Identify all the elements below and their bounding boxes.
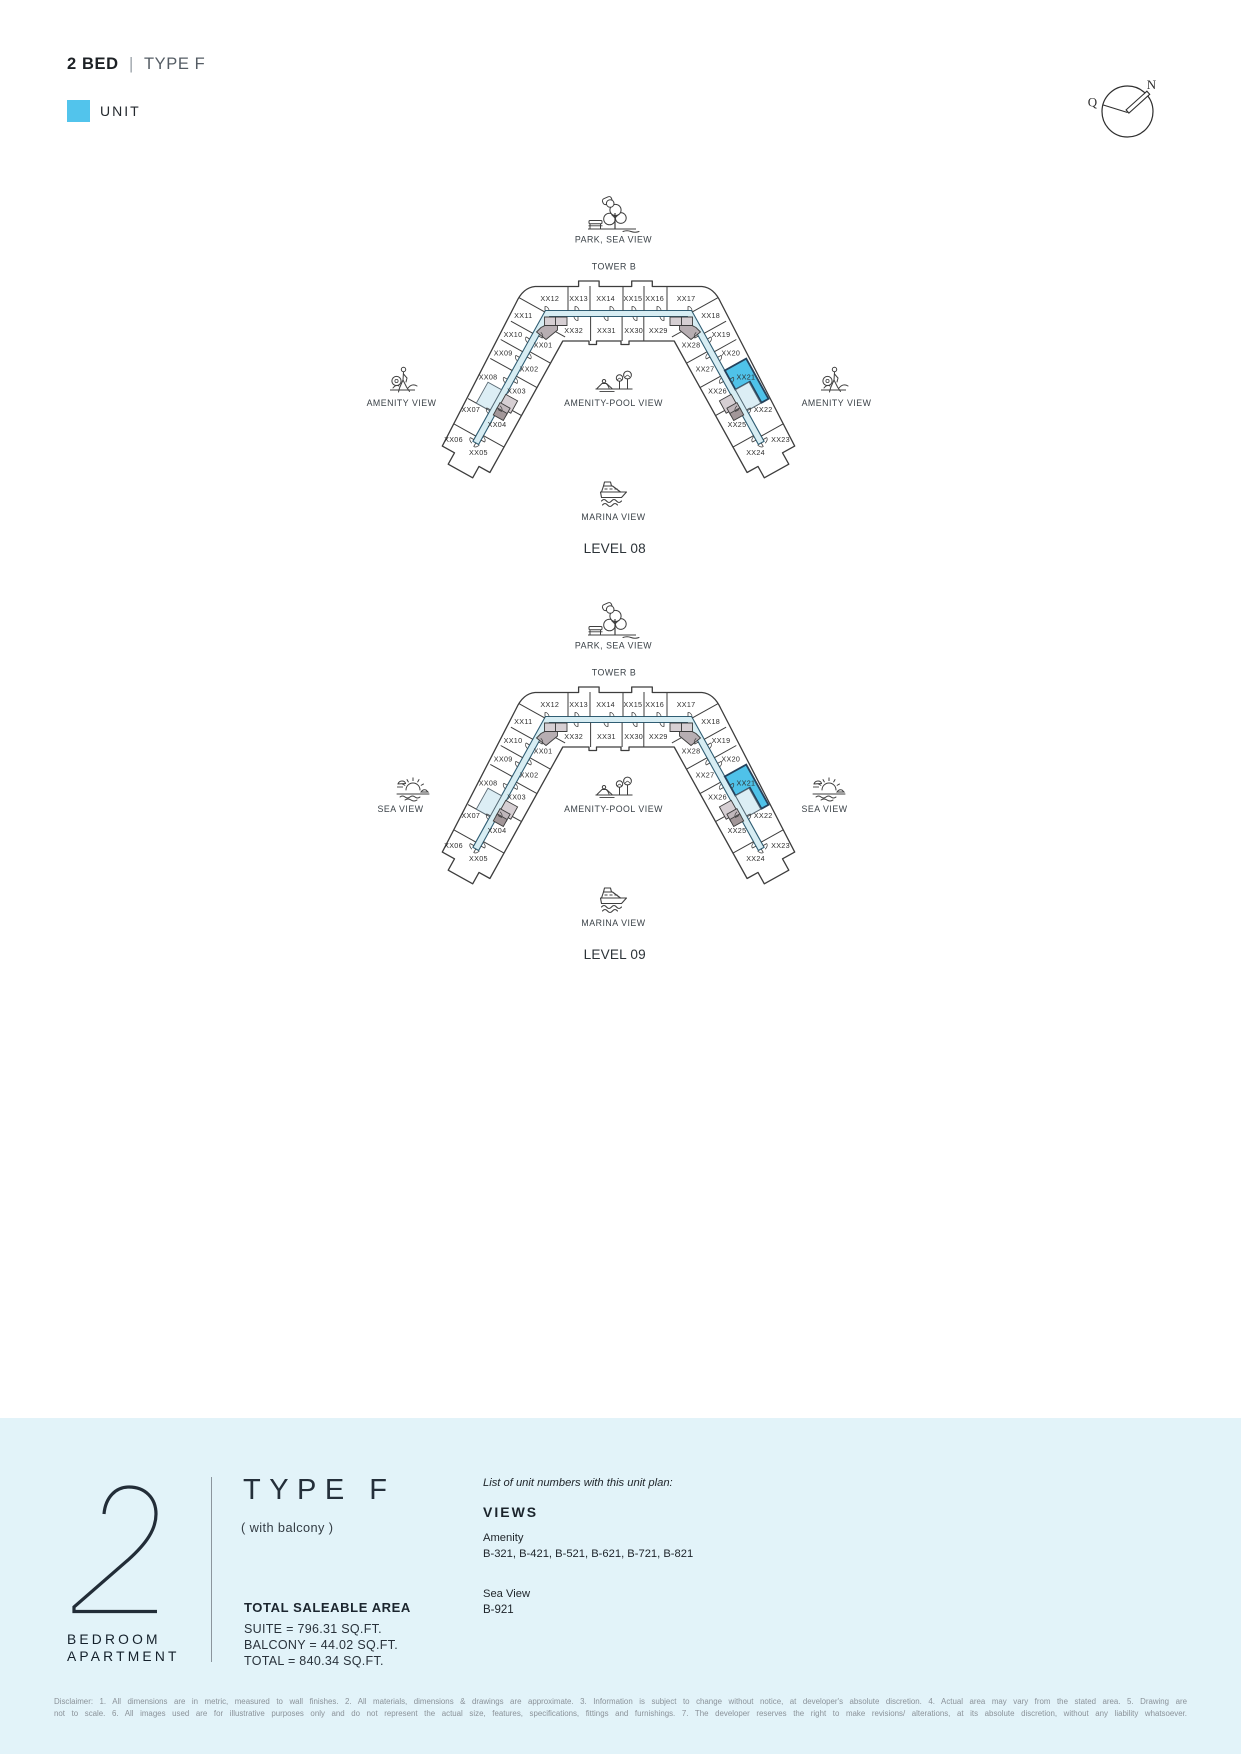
svg-text:PARK, SEA VIEW: PARK, SEA VIEW [575, 641, 652, 651]
svg-text:XX30: XX30 [624, 732, 643, 741]
svg-text:AMENITY-POOL VIEW: AMENITY-POOL VIEW [564, 398, 663, 408]
svg-text:XX11: XX11 [514, 311, 532, 320]
svg-text:AMENITY VIEW: AMENITY VIEW [367, 398, 437, 408]
svg-text:XX02: XX02 [520, 771, 539, 780]
svg-text:XX07: XX07 [461, 405, 480, 414]
svg-text:XX15: XX15 [624, 294, 643, 303]
svg-text:XX21: XX21 [737, 373, 756, 382]
svg-text:XX22: XX22 [754, 811, 773, 820]
svg-text:N: N [1147, 77, 1157, 92]
svg-text:XX30: XX30 [624, 326, 643, 335]
svg-text:XX20: XX20 [721, 755, 740, 764]
svg-text:XX24: XX24 [746, 448, 765, 457]
svg-text:XX28: XX28 [682, 341, 701, 350]
svg-text:XX21: XX21 [737, 779, 756, 788]
svg-text:XX05: XX05 [469, 448, 488, 457]
svg-text:XX23: XX23 [771, 841, 790, 850]
svg-text:XX19: XX19 [712, 330, 731, 339]
svg-text:XX01: XX01 [534, 341, 553, 350]
svg-text:TOWER B: TOWER B [592, 262, 636, 272]
svg-text:XX12: XX12 [540, 700, 559, 709]
svg-text:XX20: XX20 [721, 349, 740, 358]
svg-text:Q: Q [1088, 95, 1098, 110]
svg-text:XX23: XX23 [771, 435, 790, 444]
svg-text:XX27: XX27 [696, 771, 715, 780]
svg-text:TOWER B: TOWER B [592, 668, 636, 678]
svg-text:XX26: XX26 [708, 386, 727, 395]
svg-text:XX01: XX01 [534, 747, 553, 756]
svg-text:XX16: XX16 [645, 294, 664, 303]
svg-text:XX13: XX13 [569, 700, 588, 709]
svg-text:XX14: XX14 [596, 294, 615, 303]
svg-text:XX06: XX06 [444, 841, 463, 850]
svg-text:XX28: XX28 [682, 747, 701, 756]
svg-text:XX07: XX07 [461, 811, 480, 820]
svg-text:LEVEL 09: LEVEL 09 [584, 947, 646, 962]
svg-text:XX03: XX03 [507, 792, 526, 801]
svg-text:XX14: XX14 [596, 700, 615, 709]
svg-text:XX02: XX02 [520, 365, 539, 374]
svg-text:XX18: XX18 [701, 311, 720, 320]
svg-text:XX25: XX25 [728, 420, 747, 429]
svg-text:SEA VIEW: SEA VIEW [377, 804, 423, 814]
svg-text:XX27: XX27 [696, 365, 715, 374]
svg-text:XX11: XX11 [514, 717, 532, 726]
svg-text:XX25: XX25 [728, 826, 747, 835]
svg-text:SEA VIEW: SEA VIEW [801, 804, 847, 814]
svg-text:XX09: XX09 [494, 349, 513, 358]
svg-text:XX04: XX04 [488, 420, 507, 429]
svg-text:XX22: XX22 [754, 405, 773, 414]
svg-text:XX16: XX16 [645, 700, 664, 709]
svg-text:XX24: XX24 [746, 854, 765, 863]
svg-text:XX05: XX05 [469, 854, 488, 863]
svg-text:MARINA VIEW: MARINA VIEW [581, 918, 645, 928]
svg-text:AMENITY-POOL VIEW: AMENITY-POOL VIEW [564, 804, 663, 814]
svg-text:XX31: XX31 [597, 732, 616, 741]
svg-text:AMENITY VIEW: AMENITY VIEW [802, 398, 872, 408]
svg-text:XX18: XX18 [701, 717, 720, 726]
svg-text:XX09: XX09 [494, 755, 513, 764]
svg-text:XX08: XX08 [479, 779, 498, 788]
svg-text:MARINA VIEW: MARINA VIEW [581, 512, 645, 522]
svg-text:XX17: XX17 [677, 294, 696, 303]
svg-text:XX32: XX32 [564, 326, 583, 335]
svg-text:XX19: XX19 [712, 736, 731, 745]
svg-text:XX32: XX32 [564, 732, 583, 741]
svg-text:XX31: XX31 [597, 326, 616, 335]
svg-text:XX29: XX29 [649, 732, 668, 741]
svg-text:PARK, SEA VIEW: PARK, SEA VIEW [575, 235, 652, 245]
svg-text:XX29: XX29 [649, 326, 668, 335]
svg-text:XX03: XX03 [507, 386, 526, 395]
svg-text:XX04: XX04 [488, 826, 507, 835]
svg-text:XX17: XX17 [677, 700, 696, 709]
svg-text:XX10: XX10 [504, 330, 523, 339]
svg-text:XX06: XX06 [444, 435, 463, 444]
svg-text:XX15: XX15 [624, 700, 643, 709]
svg-text:XX10: XX10 [504, 736, 523, 745]
svg-text:XX13: XX13 [569, 294, 588, 303]
svg-text:XX26: XX26 [708, 792, 727, 801]
svg-text:XX12: XX12 [540, 294, 559, 303]
svg-text:LEVEL 08: LEVEL 08 [584, 541, 646, 556]
svg-text:XX08: XX08 [479, 373, 498, 382]
